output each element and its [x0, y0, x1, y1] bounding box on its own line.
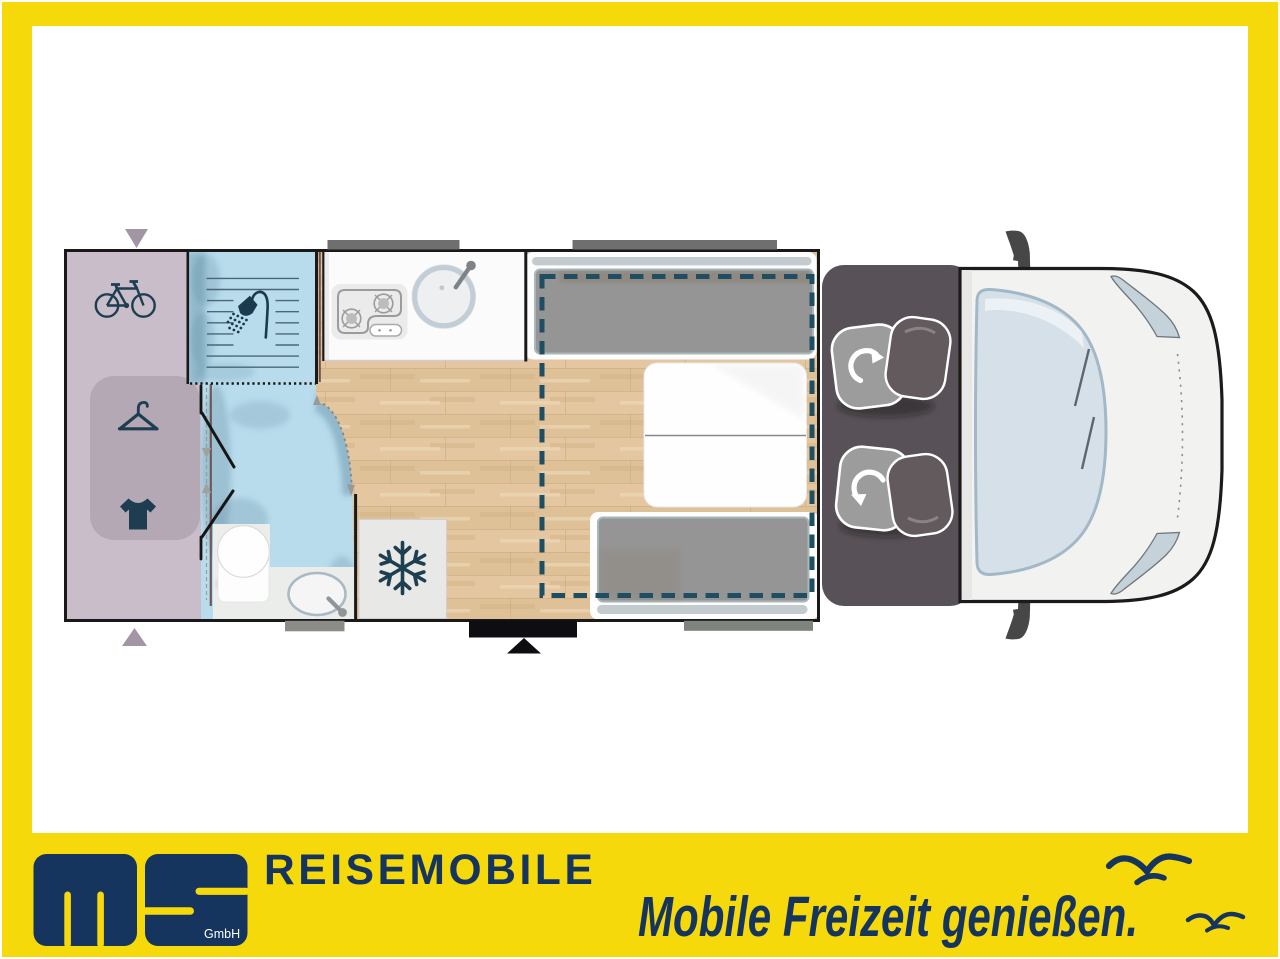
svg-text:GmbH: GmbH: [204, 927, 240, 941]
svg-text:REISEMOBILE: REISEMOBILE: [264, 847, 596, 894]
svg-text:Mobile Freizeit genießen.: Mobile Freizeit genießen.: [638, 885, 1138, 949]
